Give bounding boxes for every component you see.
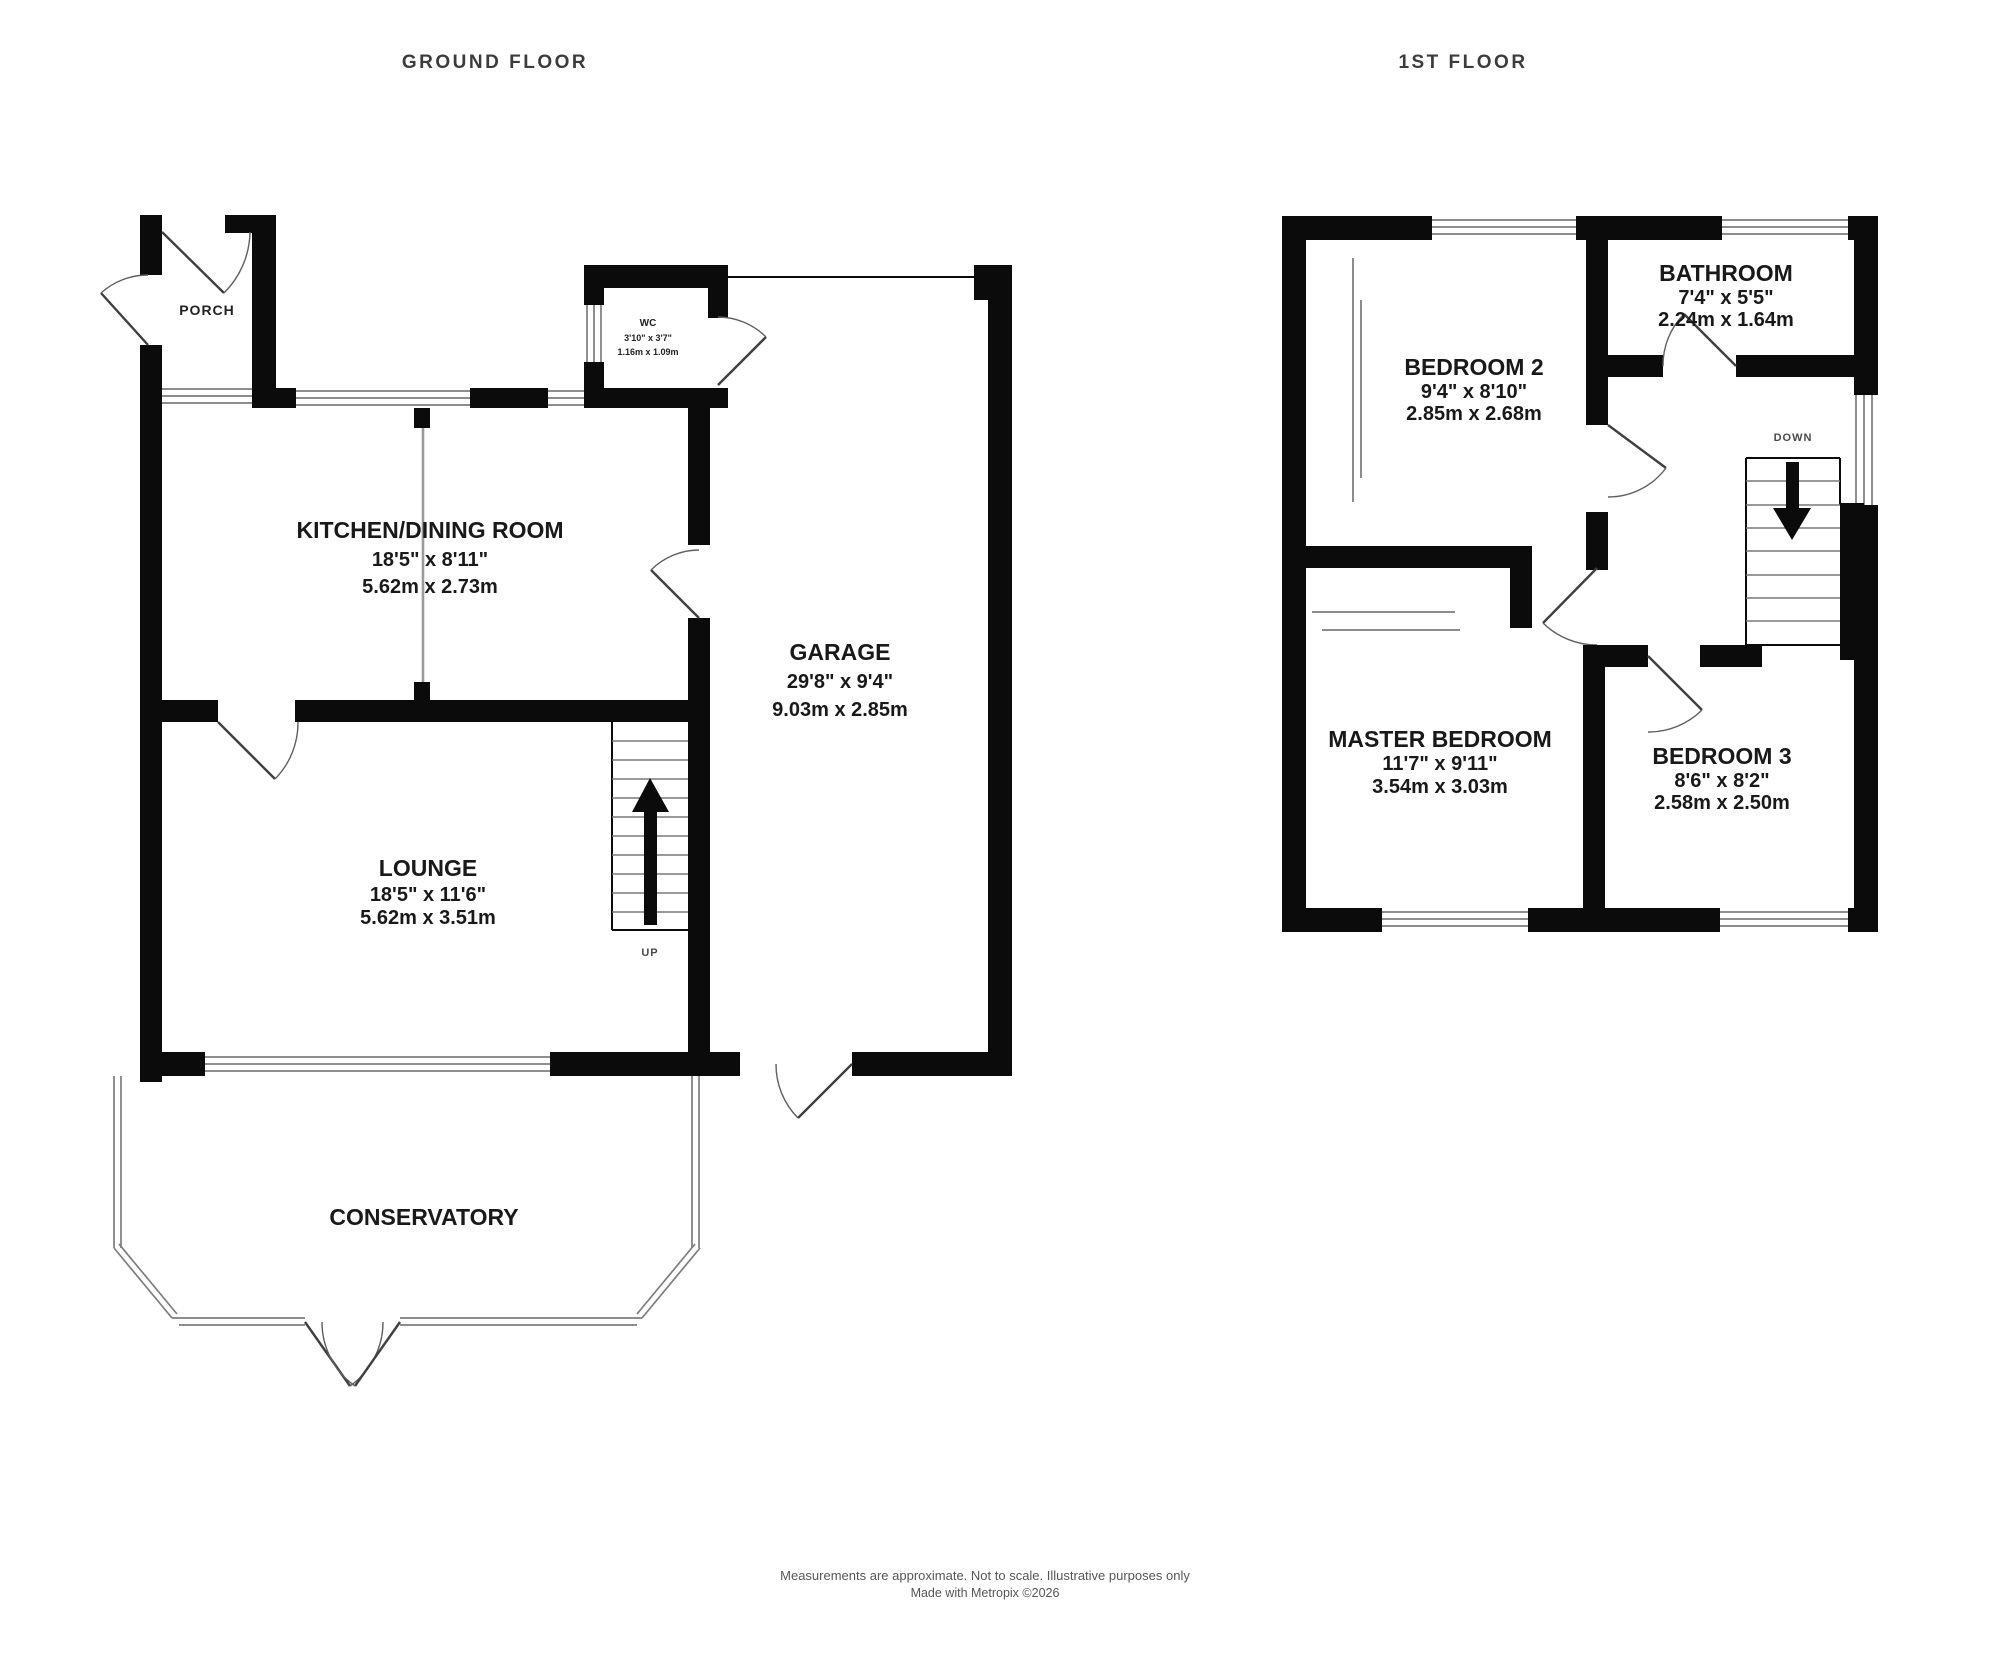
- ground-floor-title: GROUND FLOOR: [402, 52, 588, 73]
- bathroom-name: BATHROOM: [1659, 260, 1793, 286]
- bedroom2-metric: 2.85m x 2.68m: [1406, 403, 1542, 425]
- kitchen-imperial: 18'5" x 8'11": [372, 549, 488, 571]
- garage-label: GARAGE 29'8" x 9'4" 9.03m x 2.85m: [772, 639, 908, 721]
- bathroom-label: BATHROOM 7'4" x 5'5" 2.24m x 1.64m: [1658, 260, 1794, 331]
- kitchen-north-wall: [252, 388, 584, 408]
- wc-label: WC 3'10" x 3'7" 1.16m x 1.09m: [617, 318, 678, 357]
- stairs-down: DOWN: [1746, 432, 1864, 660]
- garage-metric: 9.03m x 2.85m: [772, 699, 908, 721]
- master-bedroom-label: MASTER BEDROOM 11'7" x 9'11" 3.54m x 3.0…: [1328, 726, 1552, 798]
- lounge-name: LOUNGE: [379, 855, 477, 881]
- bathroom-divider-wall: [1608, 355, 1856, 377]
- master-metric: 3.54m x 3.03m: [1372, 776, 1508, 798]
- master-divider-wall: [1306, 546, 1532, 628]
- bedroom2-name: BEDROOM 2: [1404, 354, 1543, 380]
- master-name: MASTER BEDROOM: [1328, 726, 1552, 752]
- garage-divider-wall: [688, 408, 710, 1076]
- garage-name: GARAGE: [790, 639, 891, 665]
- bedroom3-divider-wall: [1583, 645, 1605, 908]
- up-arrow-icon: [632, 778, 669, 925]
- bathroom-metric: 2.24m x 1.64m: [1658, 309, 1794, 331]
- kitchen-label: KITCHEN/DINING ROOM 18'5" x 8'11" 5.62m …: [296, 517, 563, 598]
- master-imperial: 11'7" x 9'11": [1382, 753, 1497, 775]
- conservatory-walls: [114, 1076, 700, 1325]
- bathroom-imperial: 7'4" x 5'5": [1678, 287, 1773, 309]
- footer-line1: Measurements are approximate. Not to sca…: [780, 1568, 1190, 1583]
- wc-name: WC: [640, 318, 657, 329]
- bedroom2-wardrobe-lines: [1353, 258, 1361, 502]
- wc-door: [718, 317, 766, 385]
- up-label: UP: [641, 947, 658, 959]
- bedroom2-divider-wall: [1586, 240, 1608, 570]
- wc-imperial: 3'10" x 3'7": [624, 333, 672, 343]
- floorplan-page: GROUND FLOOR 1ST FLOOR: [0, 0, 2000, 1657]
- down-label: DOWN: [1774, 432, 1813, 444]
- left-exterior-wall: [140, 385, 162, 1082]
- garage-rear-door: [776, 1064, 852, 1118]
- bedroom3-north-wall: [1605, 645, 1762, 667]
- bedroom2-label: BEDROOM 2 9'4" x 8'10" 2.85m x 2.68m: [1404, 354, 1543, 425]
- ground-floor-plan: WC 3'10" x 3'7" 1.16m x 1.09m GARAGE 29'…: [101, 215, 1012, 1386]
- conservatory-doors: [305, 1322, 400, 1386]
- porch-front-door: [162, 232, 250, 293]
- master-bedroom-door: [1543, 568, 1597, 645]
- bedroom3-metric: 2.58m x 2.50m: [1654, 792, 1790, 814]
- bedroom2-imperial: 9'4" x 8'10": [1421, 381, 1527, 403]
- conservatory-name: CONSERVATORY: [329, 1204, 518, 1230]
- garage-imperial: 29'8" x 9'4": [787, 671, 893, 693]
- kitchen-metric: 5.62m x 2.73m: [362, 576, 498, 598]
- first-floor-plan: DOWN BEDROOM 2 9'4" x 8'10" 2.85m x 2.68…: [1282, 216, 1878, 932]
- bedroom2-door: [1608, 425, 1666, 497]
- kitchen-lounge-wall: [162, 700, 688, 722]
- bedroom3-label: BEDROOM 3 8'6" x 8'2" 2.58m x 2.50m: [1652, 743, 1791, 814]
- bedroom3-door: [1648, 656, 1702, 732]
- wc-metric: 1.16m x 1.09m: [617, 347, 678, 357]
- first-floor-title: 1ST FLOOR: [1398, 52, 1527, 73]
- stairs-up: UP: [612, 722, 688, 959]
- porch-exterior-door: [101, 275, 148, 345]
- first-floor-windows: [1382, 220, 1872, 926]
- footer-disclaimer: Measurements are approximate. Not to sca…: [780, 1568, 1190, 1600]
- kitchen-lounge-door: [218, 722, 298, 779]
- kitchen-name: KITCHEN/DINING ROOM: [296, 517, 563, 543]
- bedroom3-name: BEDROOM 3: [1652, 743, 1791, 769]
- porch-window: [162, 389, 252, 403]
- bedroom3-imperial: 8'6" x 8'2": [1674, 770, 1769, 792]
- lounge-metric: 5.62m x 3.51m: [360, 907, 496, 929]
- lounge-south-wall: [140, 1052, 710, 1076]
- lounge-imperial: 18'5" x 11'6": [370, 884, 486, 906]
- kitchen-garage-door: [651, 550, 699, 618]
- lounge-label: LOUNGE 18'5" x 11'6" 5.62m x 3.51m: [360, 855, 496, 929]
- floorplan-drawing: GROUND FLOOR 1ST FLOOR: [0, 0, 2000, 1657]
- footer-line2: Made with Metropix ©2026: [911, 1586, 1060, 1600]
- master-wardrobe-lines: [1312, 612, 1460, 630]
- porch-name: PORCH: [179, 302, 235, 318]
